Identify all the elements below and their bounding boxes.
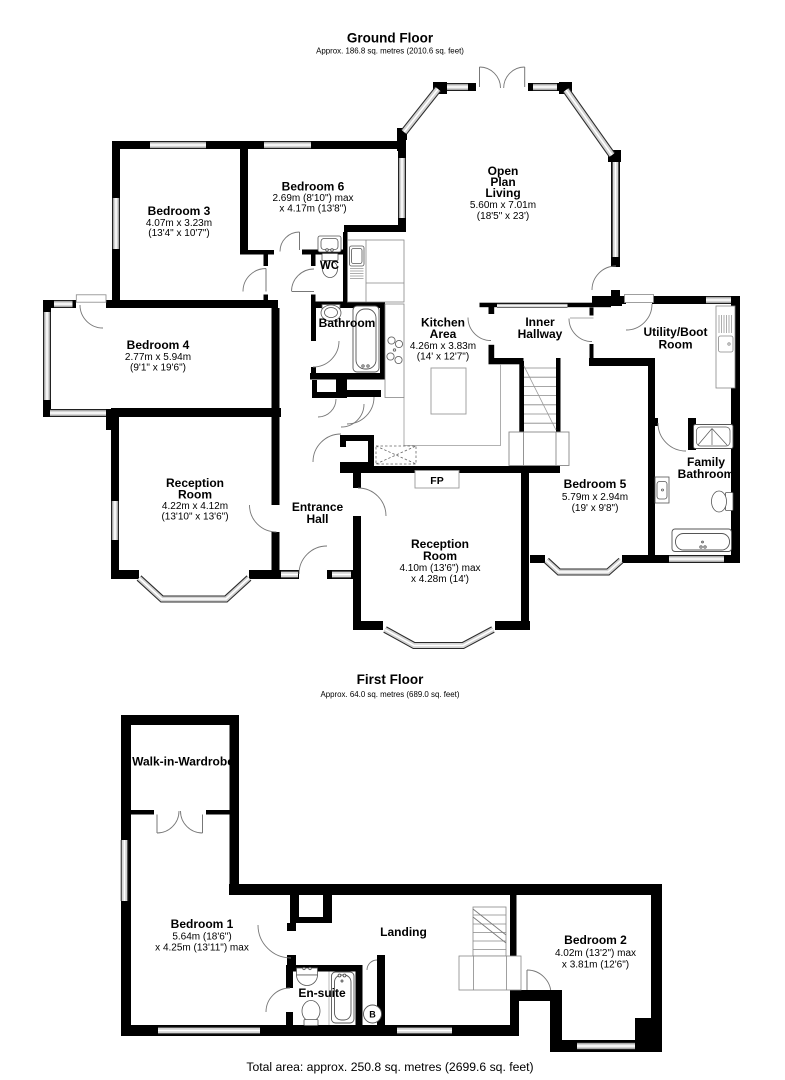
svg-text:4.26m x 3.83m: 4.26m x 3.83m	[410, 341, 476, 352]
svg-text:Bedroom 1: Bedroom 1	[171, 917, 234, 931]
svg-text:B: B	[369, 1010, 376, 1020]
svg-text:Living: Living	[485, 186, 520, 200]
svg-text:x 4.17m (13'8"): x 4.17m (13'8")	[279, 204, 346, 215]
svg-text:Bedroom 4: Bedroom 4	[127, 338, 190, 352]
svg-text:Bedroom 6: Bedroom 6	[282, 180, 345, 194]
svg-text:Room: Room	[178, 488, 212, 502]
svg-text:Room: Room	[659, 338, 693, 352]
svg-text:(19' x 9'8"): (19' x 9'8")	[572, 503, 619, 514]
svg-text:4.22m x 4.12m: 4.22m x 4.12m	[162, 501, 228, 512]
svg-text:2.77m x 5.94m: 2.77m x 5.94m	[125, 352, 191, 363]
svg-text:Hall: Hall	[306, 512, 328, 526]
svg-text:Ground Floor: Ground Floor	[347, 31, 434, 46]
svg-text:Approx. 64.0 sq. metres (689.0: Approx. 64.0 sq. metres (689.0 sq. feet)	[320, 690, 459, 699]
svg-text:Bedroom 3: Bedroom 3	[148, 204, 211, 218]
svg-text:2.69m (8'10") max: 2.69m (8'10") max	[272, 193, 353, 204]
svg-text:Approx. 186.8 sq. metres (2010: Approx. 186.8 sq. metres (2010.6 sq. fee…	[316, 47, 464, 56]
svg-text:WC: WC	[320, 260, 339, 272]
svg-text:5.79m x 2.94m: 5.79m x 2.94m	[562, 492, 628, 503]
svg-text:4.02m (13'2") max: 4.02m (13'2") max	[555, 948, 636, 959]
svg-text:Landing: Landing	[380, 925, 427, 939]
svg-text:4.10m (13'6") max: 4.10m (13'6") max	[399, 563, 480, 574]
svg-text:5.64m (18'6"): 5.64m (18'6")	[172, 932, 231, 943]
svg-text:FP: FP	[430, 475, 443, 487]
svg-text:x 3.81m (12'6"): x 3.81m (12'6")	[562, 960, 629, 971]
svg-text:Area: Area	[430, 327, 457, 341]
svg-text:Bedroom 5: Bedroom 5	[564, 477, 627, 491]
svg-text:First Floor: First Floor	[357, 672, 424, 687]
svg-text:(13'4" x 10'7"): (13'4" x 10'7")	[148, 228, 210, 239]
svg-text:Bathroom: Bathroom	[319, 316, 376, 330]
svg-text:x 4.25m (13'11") max: x 4.25m (13'11") max	[155, 943, 249, 954]
svg-text:(9'1" x 19'6"): (9'1" x 19'6")	[130, 363, 186, 374]
svg-text:Bedroom 2: Bedroom 2	[564, 933, 627, 947]
svg-text:(14' x 12'7"): (14' x 12'7")	[417, 352, 469, 363]
svg-text:(18'5" x 23'): (18'5" x 23')	[477, 211, 529, 222]
svg-text:x 4.28m (14'): x 4.28m (14')	[411, 574, 469, 585]
svg-text:Room: Room	[423, 549, 457, 563]
svg-text:(13'10" x 13'6"): (13'10" x 13'6")	[161, 512, 228, 523]
svg-text:En-suite: En-suite	[298, 986, 346, 1000]
svg-text:Hallway: Hallway	[518, 327, 563, 341]
svg-text:Bathroom: Bathroom	[678, 467, 735, 481]
svg-text:Walk-in-Wardrobe: Walk-in-Wardrobe	[132, 755, 234, 769]
svg-text:5.60m x 7.01m: 5.60m x 7.01m	[470, 200, 536, 211]
svg-text:Total area: approx. 250.8 sq.: Total area: approx. 250.8 sq. metres (26…	[246, 1060, 533, 1074]
